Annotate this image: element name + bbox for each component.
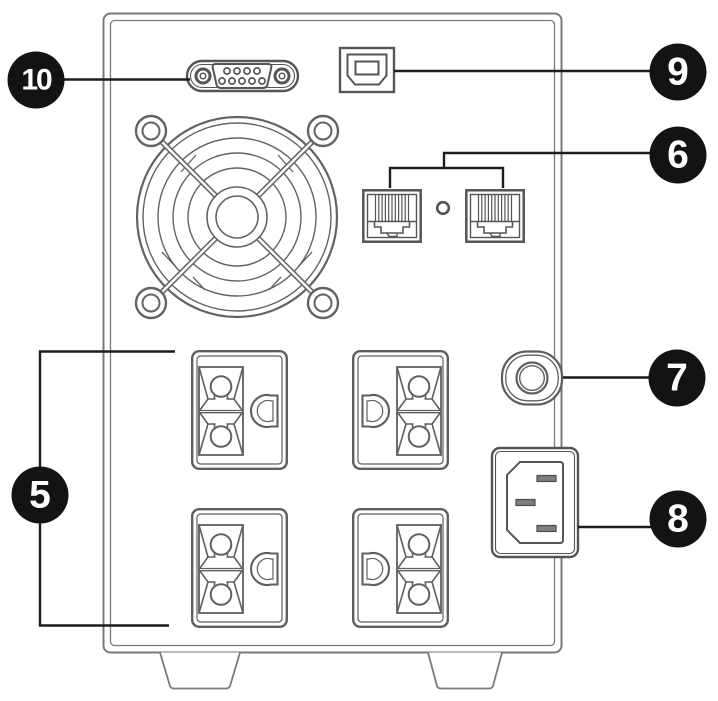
usb-port: [340, 48, 394, 92]
breaker-button: [502, 352, 562, 405]
outlet-bottom-left: [192, 509, 287, 627]
callout-10-label: 10: [21, 65, 50, 95]
rj45-port-left: [363, 190, 420, 241]
callout-8-label: 8: [667, 499, 689, 538]
foot-right: [428, 653, 502, 689]
ac-inlet: [492, 448, 578, 557]
callout-8: 8: [650, 490, 707, 547]
callout-5-label: 5: [29, 476, 51, 515]
callout-7-label: 7: [666, 358, 688, 397]
rear-panel-line-art: [0, 0, 718, 701]
callout-5: 5: [12, 467, 69, 524]
callout-9-label: 9: [667, 53, 689, 92]
callout-7: 7: [649, 349, 706, 406]
callout-6: 6: [650, 127, 707, 184]
callout-9: 9: [650, 44, 707, 101]
callout-10: 10: [8, 52, 65, 109]
rj45-port-right: [466, 190, 523, 241]
outlet-top-right: [353, 351, 448, 469]
diagram-canvas: 5 6 7 8 9 10: [0, 0, 718, 701]
callout-6-label: 6: [667, 136, 689, 175]
serial-port: [187, 61, 298, 91]
foot-left: [160, 653, 240, 689]
outlet-top-left: [192, 351, 287, 469]
outlet-bottom-right: [353, 509, 448, 627]
